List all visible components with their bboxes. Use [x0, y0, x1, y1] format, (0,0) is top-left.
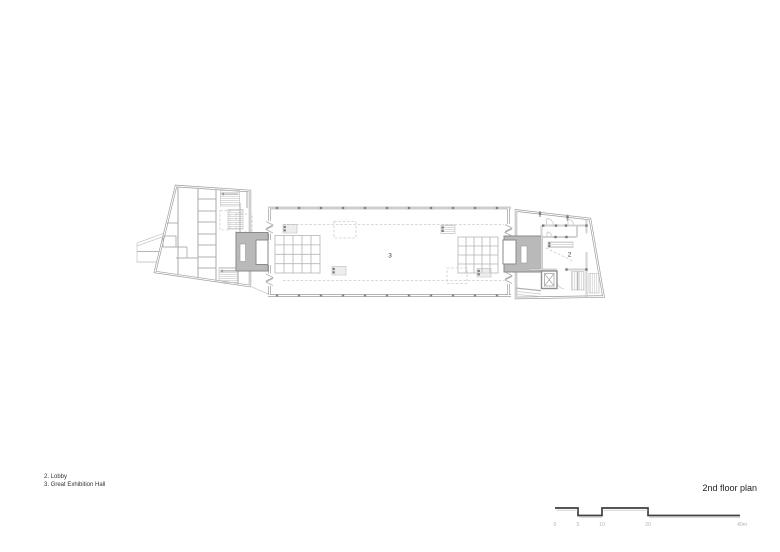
lobby-escalator-icon — [548, 242, 573, 248]
scale-label-10: 10 — [599, 522, 605, 528]
floor-plan-canvas: 3 — [0, 0, 780, 552]
exhibition-hall: 3 — [265, 207, 513, 297]
scale-bar: 0 5 10 20 40m — [554, 508, 747, 528]
escalator-icon — [332, 267, 346, 276]
elevator-icon — [542, 271, 558, 289]
escalator-icon — [477, 269, 491, 278]
scale-label-20: 20 — [645, 522, 651, 528]
room-label-exhibition-hall: 3 — [388, 253, 392, 260]
escalator-icon — [441, 225, 455, 234]
legend-item-exhibition-hall: 3. Great Exhibition Hall — [44, 481, 105, 489]
room-label-lobby: 2 — [568, 252, 572, 259]
skylight-grid-left — [275, 236, 320, 274]
lobby-stair2-icon — [589, 274, 599, 294]
scale-label-0: 0 — [554, 522, 557, 528]
roof-edge-line — [252, 287, 268, 294]
scale-label-5: 5 — [577, 522, 580, 528]
core-right — [503, 236, 542, 272]
stair-middle-icon — [228, 210, 243, 230]
scale-label-40m: 40m — [737, 522, 747, 528]
legend-item-lobby: 2. Lobby — [44, 473, 105, 481]
skylight-grid-right — [458, 237, 498, 273]
lobby-wing: 2 — [503, 211, 604, 299]
drawing-title: 2nd floor plan — [640, 483, 757, 493]
core-left — [236, 233, 268, 272]
floor-plan-drawing: 3 — [0, 0, 780, 552]
stair-upper-icon — [221, 191, 240, 207]
legend: 2. Lobby 3. Great Exhibition Hall — [44, 473, 105, 490]
stair-lower-icon — [219, 268, 238, 283]
lobby-stair-icon — [572, 272, 585, 291]
escalator-icon — [283, 225, 297, 234]
